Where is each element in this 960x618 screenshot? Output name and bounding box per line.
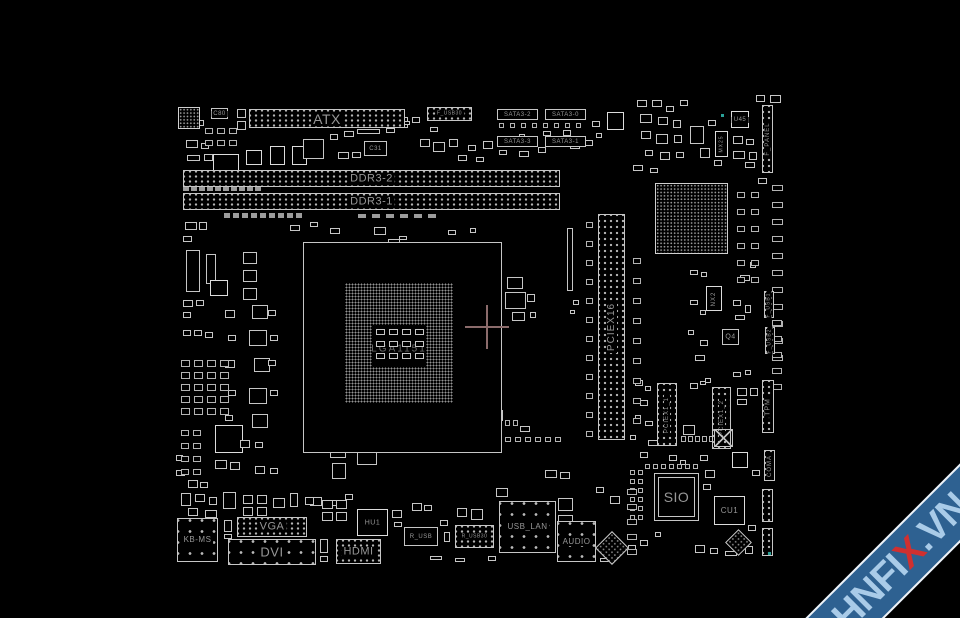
pad bbox=[633, 278, 641, 284]
pad bbox=[772, 185, 783, 191]
pad bbox=[638, 506, 643, 511]
sata3-1-connector[interactable]: SATA3-1 bbox=[545, 136, 586, 147]
u45-chip-label: U45 bbox=[732, 117, 749, 123]
smd-component bbox=[194, 330, 202, 336]
cavity-capacitor bbox=[376, 353, 385, 359]
pad bbox=[194, 396, 203, 403]
smd-component bbox=[249, 330, 267, 346]
boardview-canvas: ATXDDR3-2DDR3-1SATA3-2SATA3-0SATA3-3SATA… bbox=[0, 0, 960, 618]
smd-component bbox=[745, 305, 751, 313]
sio-chip[interactable]: SIO bbox=[654, 473, 699, 521]
smd-component bbox=[505, 292, 526, 309]
smd-component bbox=[483, 141, 493, 149]
usb-lan-connector[interactable]: USB_LAN bbox=[499, 501, 556, 553]
cavity-capacitor bbox=[415, 329, 424, 335]
smd-component bbox=[640, 114, 652, 123]
pad bbox=[586, 374, 593, 380]
pad bbox=[688, 436, 693, 442]
smd-component bbox=[345, 494, 353, 500]
pad bbox=[220, 396, 229, 403]
smd-component bbox=[310, 222, 318, 227]
smd-component bbox=[680, 100, 688, 106]
smd-component bbox=[444, 532, 450, 542]
smd-component bbox=[237, 109, 246, 118]
pad bbox=[737, 209, 745, 215]
smd-component bbox=[700, 340, 708, 346]
pad bbox=[772, 202, 783, 208]
pad bbox=[207, 408, 216, 415]
hdmi-connector[interactable]: HDMI bbox=[336, 539, 381, 564]
pad bbox=[772, 219, 783, 225]
smd-component bbox=[703, 484, 711, 490]
smd-component bbox=[596, 487, 604, 493]
pciex1-1-slot-label: PCIEX1_1 bbox=[664, 394, 670, 434]
smd-component bbox=[223, 492, 236, 509]
smd-component bbox=[412, 503, 422, 511]
smd-component bbox=[690, 270, 698, 275]
pad bbox=[586, 393, 593, 399]
bios-chip[interactable]: MX25 bbox=[715, 131, 728, 157]
pad bbox=[627, 549, 637, 555]
smd-component bbox=[737, 388, 747, 396]
pad bbox=[199, 187, 205, 191]
c31-component-label: C31 bbox=[367, 146, 384, 152]
pad bbox=[751, 243, 759, 249]
smd-component bbox=[386, 128, 395, 133]
pad bbox=[220, 360, 229, 367]
pad bbox=[633, 398, 641, 404]
smd-component bbox=[735, 315, 745, 320]
pad bbox=[627, 489, 637, 495]
r-usb30-connector[interactable]: R_USB30 bbox=[455, 525, 494, 548]
dvi-connector[interactable]: DVI bbox=[228, 539, 316, 565]
smd-component bbox=[185, 222, 197, 230]
pad bbox=[205, 140, 213, 146]
pad bbox=[255, 187, 261, 191]
smd-component bbox=[745, 162, 755, 168]
hu1-chip[interactable]: HU1 bbox=[357, 509, 388, 536]
dvi-connector-label: DVI bbox=[258, 546, 285, 559]
pad bbox=[669, 464, 674, 469]
smd-component bbox=[645, 386, 651, 391]
pad bbox=[207, 372, 216, 379]
pad bbox=[183, 187, 189, 191]
pad bbox=[685, 464, 690, 469]
smd-component bbox=[228, 335, 236, 341]
pad bbox=[181, 430, 189, 436]
sata3-0-connector-label: SATA3-0 bbox=[550, 112, 581, 118]
pad bbox=[737, 243, 745, 249]
pad bbox=[737, 192, 745, 198]
f-usb30-header-label: F_USB30 bbox=[435, 112, 464, 117]
sio-chip-label: SIO bbox=[662, 490, 692, 504]
smd-component bbox=[338, 152, 349, 159]
smd-component bbox=[708, 120, 716, 126]
pad bbox=[229, 140, 237, 146]
smd-component bbox=[243, 507, 253, 516]
pad bbox=[510, 123, 515, 128]
fiducial-mark[interactable] bbox=[178, 107, 200, 129]
pad bbox=[576, 123, 581, 128]
pad bbox=[242, 213, 248, 218]
pad bbox=[181, 408, 190, 415]
smd-component bbox=[246, 150, 262, 165]
tpm-header[interactable]: TPM bbox=[762, 380, 774, 433]
f-usb2-header[interactable]: F_USB2 bbox=[765, 327, 775, 354]
f-usb2-header-label: F_USB2 bbox=[768, 326, 773, 355]
smd-component bbox=[249, 388, 267, 404]
pad bbox=[386, 214, 394, 218]
smd-component bbox=[752, 470, 760, 476]
smd-component bbox=[545, 470, 557, 478]
audio-connector[interactable]: AUDIO bbox=[557, 521, 596, 562]
smd-component bbox=[449, 139, 458, 147]
pad bbox=[191, 187, 197, 191]
smd-component bbox=[237, 121, 246, 130]
smd-component bbox=[440, 520, 448, 526]
smd-component bbox=[468, 145, 476, 151]
smd-component bbox=[714, 160, 722, 166]
pad bbox=[499, 123, 504, 128]
audio-connector-label: AUDIO bbox=[561, 538, 593, 546]
cavity-capacitor bbox=[376, 329, 385, 335]
smd-component bbox=[255, 466, 265, 474]
smd-component bbox=[252, 414, 268, 428]
pad bbox=[772, 253, 783, 259]
pad bbox=[181, 443, 189, 449]
ddr3-1-slot[interactable]: DDR3-1 bbox=[183, 193, 560, 210]
cavity-capacitor bbox=[402, 341, 411, 347]
smd-component bbox=[630, 435, 636, 440]
pad bbox=[630, 479, 635, 484]
smd-component bbox=[430, 127, 438, 132]
smd-component bbox=[457, 508, 467, 517]
r-usb-connector[interactable]: R_USB bbox=[404, 527, 438, 546]
smd-component bbox=[374, 227, 386, 235]
pad bbox=[260, 213, 266, 218]
pad bbox=[751, 192, 759, 198]
smd-component bbox=[530, 312, 536, 318]
smd-component bbox=[570, 310, 575, 314]
smd-component bbox=[210, 280, 228, 296]
smd-component bbox=[688, 330, 694, 335]
smd-component bbox=[209, 497, 217, 505]
smd-component bbox=[676, 152, 684, 158]
pciex16-slot[interactable]: PCIEX16 bbox=[598, 214, 625, 440]
smd-component bbox=[756, 95, 765, 102]
pad bbox=[194, 372, 203, 379]
pad bbox=[737, 260, 745, 266]
smd-component bbox=[746, 139, 754, 145]
smd-component bbox=[705, 378, 711, 383]
smd-component bbox=[204, 154, 213, 161]
pad bbox=[586, 279, 593, 285]
pad bbox=[586, 222, 593, 228]
pad bbox=[627, 504, 637, 510]
pad bbox=[737, 277, 745, 283]
pad bbox=[737, 226, 745, 232]
smd-component bbox=[596, 133, 602, 138]
smd-component bbox=[673, 120, 681, 128]
c31-component[interactable]: C31 bbox=[364, 141, 387, 156]
smd-component bbox=[640, 452, 648, 458]
smd-component bbox=[336, 500, 347, 509]
f-panel-header[interactable]: F_PANEL bbox=[762, 105, 773, 173]
pad bbox=[215, 187, 221, 191]
nx2-chip[interactable]: NX2 bbox=[706, 286, 722, 311]
pad bbox=[207, 360, 216, 367]
pad bbox=[633, 418, 641, 424]
smd-component bbox=[705, 470, 715, 478]
smd-component bbox=[215, 425, 243, 453]
smd-component bbox=[645, 421, 653, 426]
ddr3-1-slot-label: DDR3-1 bbox=[348, 196, 395, 207]
smd-component bbox=[187, 155, 200, 161]
coma-header-label: COMA bbox=[767, 453, 773, 479]
pad bbox=[630, 470, 635, 475]
ddr3-2-slot[interactable]: DDR3-2 bbox=[183, 170, 560, 187]
smd-component bbox=[656, 134, 668, 144]
pad bbox=[181, 360, 190, 367]
pad bbox=[181, 384, 190, 391]
pad bbox=[751, 226, 759, 232]
smd-component bbox=[701, 272, 707, 277]
smd-component bbox=[196, 300, 204, 306]
smd-component bbox=[496, 488, 508, 497]
smd-component bbox=[183, 330, 191, 336]
smd-component bbox=[732, 452, 748, 468]
pad bbox=[638, 515, 643, 520]
pad bbox=[638, 479, 643, 484]
nx2-chip-label: NX2 bbox=[711, 289, 717, 308]
pad bbox=[194, 408, 203, 415]
cavity-capacitor bbox=[376, 341, 385, 347]
q4-component-label: Q4 bbox=[723, 334, 737, 341]
smd-component bbox=[252, 305, 268, 319]
sata3-3-connector-label: SATA3-3 bbox=[502, 139, 533, 145]
smd-component bbox=[183, 300, 193, 307]
kb-ms-connector-label: KB-MS bbox=[182, 536, 214, 544]
smd-component bbox=[183, 312, 191, 318]
c80-component-label: C80 bbox=[211, 111, 228, 117]
smd-component bbox=[733, 151, 745, 159]
smd-component bbox=[733, 136, 743, 144]
pad bbox=[535, 437, 541, 442]
smd-component bbox=[330, 228, 340, 234]
f-usb30-header[interactable]: F_USB30 bbox=[427, 107, 472, 121]
smd-component bbox=[320, 539, 328, 553]
pad bbox=[515, 437, 521, 442]
smd-component bbox=[645, 150, 653, 156]
smd-component bbox=[507, 277, 523, 289]
net-highlight-dot bbox=[721, 114, 724, 117]
pad bbox=[695, 436, 700, 442]
smd-component bbox=[270, 390, 278, 396]
smd-component bbox=[336, 512, 347, 521]
pad bbox=[194, 384, 203, 391]
smd-component bbox=[762, 489, 773, 522]
f-panel-header-label: F_PANEL bbox=[765, 120, 771, 157]
crystal-component[interactable] bbox=[714, 429, 733, 447]
pad bbox=[751, 260, 759, 266]
pad bbox=[702, 436, 707, 442]
smd-component bbox=[344, 131, 354, 137]
pad bbox=[521, 123, 526, 128]
pad bbox=[181, 396, 190, 403]
smd-component bbox=[695, 545, 705, 553]
smd-component bbox=[205, 332, 213, 338]
smd-component bbox=[257, 495, 267, 504]
atx-connector-label: ATX bbox=[311, 112, 343, 126]
cu1-chip[interactable]: CU1 bbox=[714, 496, 745, 525]
pad bbox=[233, 213, 239, 218]
smd-component bbox=[230, 462, 240, 470]
smd-component bbox=[225, 415, 233, 421]
smd-component bbox=[183, 236, 192, 242]
pad bbox=[586, 355, 593, 361]
smd-component bbox=[750, 388, 758, 396]
hu1-chip-label: HU1 bbox=[363, 519, 383, 526]
smd-component bbox=[224, 520, 232, 532]
smd-component bbox=[733, 300, 741, 306]
pad bbox=[181, 469, 189, 475]
smd-component bbox=[352, 152, 361, 158]
smd-component bbox=[610, 496, 620, 504]
smd-component bbox=[650, 168, 658, 173]
u45-chip[interactable]: U45 bbox=[731, 111, 749, 128]
smd-component bbox=[255, 442, 263, 448]
smd-component bbox=[268, 360, 276, 366]
kb-ms-connector[interactable]: KB-MS bbox=[177, 518, 218, 562]
pad bbox=[400, 214, 408, 218]
pciex16-slot-label: PCIEX16 bbox=[607, 301, 617, 353]
smd-component bbox=[225, 310, 235, 318]
pad bbox=[505, 437, 511, 442]
smd-component bbox=[748, 525, 756, 531]
cavity-capacitor bbox=[415, 341, 424, 347]
cavity-capacitor bbox=[415, 353, 424, 359]
q4-component[interactable]: Q4 bbox=[722, 329, 739, 345]
smd-component bbox=[666, 106, 674, 112]
smd-component bbox=[268, 310, 276, 316]
pad bbox=[217, 140, 225, 146]
pad bbox=[586, 336, 593, 342]
pad bbox=[633, 378, 641, 384]
pad bbox=[693, 464, 698, 469]
f-usb1-header[interactable]: F_USB1 bbox=[764, 291, 774, 318]
smd-component bbox=[471, 509, 483, 520]
pad bbox=[505, 420, 510, 426]
smd-component bbox=[200, 482, 208, 488]
smd-component bbox=[488, 556, 496, 561]
smd-component bbox=[519, 151, 529, 157]
pad bbox=[269, 213, 275, 218]
pch-chip[interactable] bbox=[655, 183, 728, 254]
smd-component bbox=[305, 497, 314, 505]
smd-component bbox=[399, 236, 407, 240]
smd-component bbox=[573, 300, 579, 305]
atx-connector[interactable]: ATX bbox=[249, 109, 405, 128]
c80-component[interactable]: C80 bbox=[211, 108, 228, 119]
net-highlight-dot bbox=[768, 552, 771, 555]
pad bbox=[205, 128, 213, 134]
coma-header[interactable]: COMA bbox=[764, 450, 775, 481]
smd-component bbox=[205, 510, 217, 518]
pad bbox=[229, 128, 237, 134]
r-usb-connector-label: R_USB bbox=[408, 534, 435, 540]
pad bbox=[372, 214, 380, 218]
pad bbox=[586, 260, 593, 266]
pad bbox=[223, 187, 229, 191]
cavity-capacitor bbox=[389, 341, 398, 347]
smd-component bbox=[733, 372, 741, 377]
smd-component bbox=[585, 140, 593, 146]
pad bbox=[586, 431, 593, 437]
pad bbox=[220, 408, 229, 415]
pad bbox=[633, 358, 641, 364]
vga-connector[interactable]: VGA bbox=[237, 517, 307, 537]
smd-component bbox=[749, 152, 757, 160]
cavity-capacitor bbox=[389, 353, 398, 359]
pad bbox=[772, 320, 782, 326]
smd-component bbox=[560, 472, 570, 479]
smd-component bbox=[290, 493, 298, 507]
pad bbox=[220, 372, 229, 379]
pad bbox=[217, 128, 225, 134]
pad bbox=[543, 123, 548, 128]
smd-component bbox=[322, 512, 333, 521]
smd-component bbox=[700, 148, 710, 158]
pad bbox=[565, 123, 570, 128]
smd-component bbox=[322, 500, 333, 509]
sata3-3-connector[interactable]: SATA3-3 bbox=[497, 136, 538, 147]
smd-component bbox=[655, 532, 661, 537]
smd-component bbox=[213, 154, 239, 171]
pad bbox=[751, 277, 759, 283]
pad bbox=[247, 187, 253, 191]
sata3-2-connector[interactable]: SATA3-2 bbox=[497, 109, 538, 120]
smd-component bbox=[243, 495, 253, 504]
pciex1-1-slot[interactable]: PCIEX1_1 bbox=[657, 383, 677, 446]
sata3-0-connector[interactable]: SATA3-0 bbox=[545, 109, 586, 120]
pad bbox=[193, 469, 201, 475]
smd-component bbox=[607, 112, 624, 130]
smd-component bbox=[758, 178, 767, 184]
smd-component bbox=[188, 508, 198, 516]
smd-component bbox=[330, 134, 338, 140]
pad bbox=[633, 318, 641, 324]
pad bbox=[545, 437, 551, 442]
cavity-capacitor bbox=[402, 353, 411, 359]
smd-component bbox=[270, 468, 278, 474]
smd-component bbox=[181, 493, 191, 506]
pad bbox=[751, 209, 759, 215]
pad bbox=[638, 470, 643, 475]
pad bbox=[627, 519, 637, 525]
pad bbox=[661, 464, 666, 469]
smd-component bbox=[186, 250, 200, 292]
cavity-capacitor bbox=[389, 329, 398, 335]
smd-component bbox=[228, 390, 236, 396]
pad bbox=[633, 298, 641, 304]
pad bbox=[239, 187, 245, 191]
smd-component bbox=[640, 540, 648, 546]
cavity-capacitor bbox=[402, 329, 411, 335]
cu1-chip-label: CU1 bbox=[719, 507, 741, 515]
smd-component bbox=[710, 548, 718, 554]
smd-component bbox=[357, 129, 380, 134]
smd-component bbox=[527, 294, 535, 302]
